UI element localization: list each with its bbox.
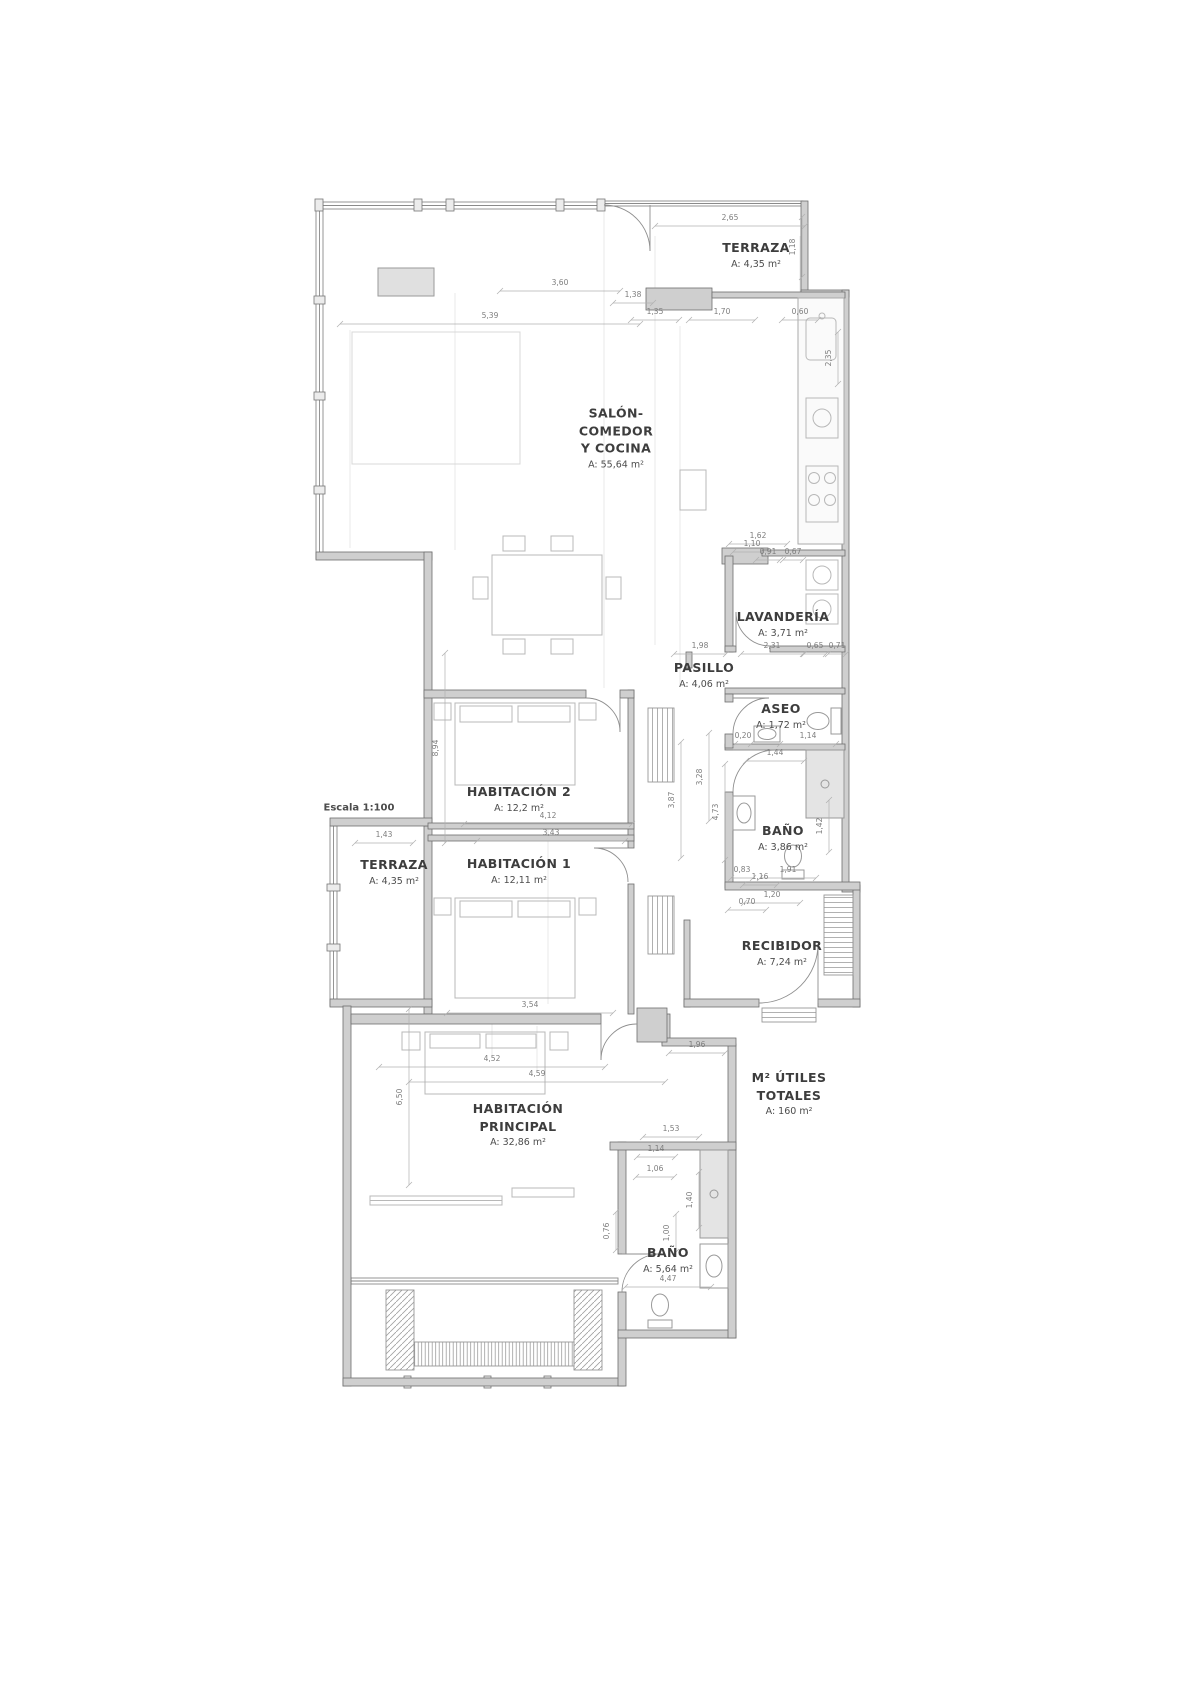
column — [386, 1290, 414, 1370]
entry-step — [762, 1008, 816, 1022]
pillow — [460, 706, 512, 722]
washbasin-icon — [758, 729, 776, 740]
nightstand — [402, 1032, 420, 1050]
sofa-area — [352, 332, 520, 464]
shower-tray — [700, 1150, 728, 1238]
chair — [503, 639, 525, 654]
toilet-tank — [831, 708, 841, 734]
toilet-icon — [785, 845, 802, 867]
walls — [316, 201, 860, 1386]
nightstand — [550, 1032, 568, 1050]
floorplan-page: TERRAZA A: 4,35 m² SALÓN- COMEDOR Y COCI… — [0, 0, 1200, 1697]
sideboard — [378, 268, 434, 296]
stair-block — [824, 895, 853, 975]
pillow — [430, 1034, 480, 1048]
pillow — [486, 1034, 536, 1048]
dining-table — [492, 555, 602, 635]
pillow — [518, 901, 570, 917]
dimension-lines — [337, 214, 849, 1290]
toilet-tank — [648, 1320, 672, 1328]
floorplan-svg — [0, 0, 1200, 1697]
nightstand — [579, 898, 596, 915]
shower-tray — [806, 750, 844, 818]
bed — [425, 1032, 545, 1094]
bed — [455, 703, 575, 785]
bed — [455, 898, 575, 998]
pillow — [460, 901, 512, 917]
washbasin-icon — [706, 1255, 722, 1277]
window-mullions — [314, 199, 605, 1388]
chair — [503, 536, 525, 551]
kitchen-counter — [798, 298, 844, 544]
chair — [551, 639, 573, 654]
chair — [606, 577, 621, 599]
kitchen-island — [680, 470, 706, 510]
closet-rail — [512, 1188, 574, 1197]
chair — [551, 536, 573, 551]
washing-machine — [806, 560, 838, 590]
nightstand — [434, 898, 451, 915]
toilet-icon — [652, 1294, 669, 1316]
dryer — [806, 594, 838, 624]
nightstand — [434, 703, 451, 720]
pillow — [518, 706, 570, 722]
washbasin-icon — [737, 803, 751, 823]
chair — [473, 577, 488, 599]
wardrobe — [648, 708, 674, 782]
hatched-elements — [386, 708, 853, 1370]
toilet-icon — [807, 713, 829, 730]
wardrobe — [648, 896, 674, 954]
column — [574, 1290, 602, 1370]
radiator — [414, 1342, 574, 1366]
nightstand — [579, 703, 596, 720]
